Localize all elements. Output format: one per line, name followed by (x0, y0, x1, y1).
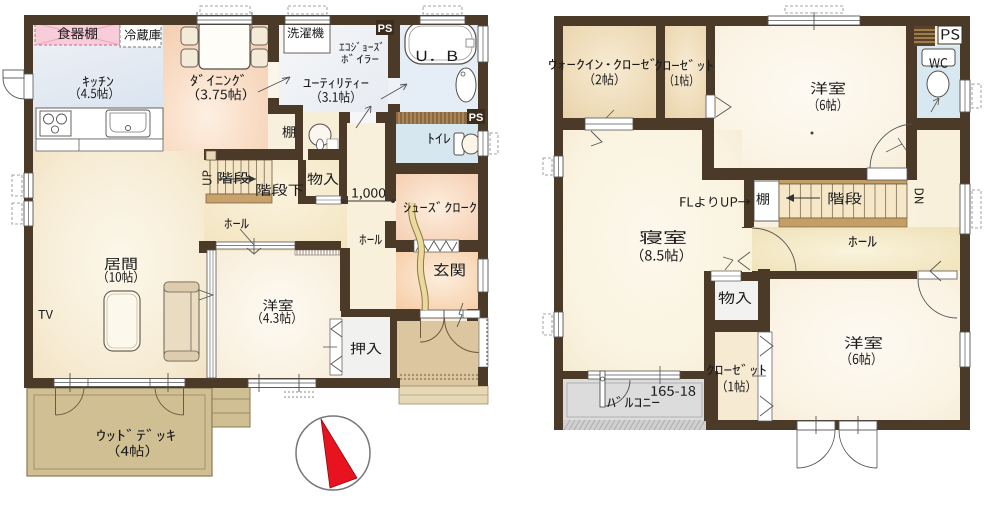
svg-text:PS: PS (378, 23, 393, 35)
svg-text:PS: PS (469, 112, 484, 124)
